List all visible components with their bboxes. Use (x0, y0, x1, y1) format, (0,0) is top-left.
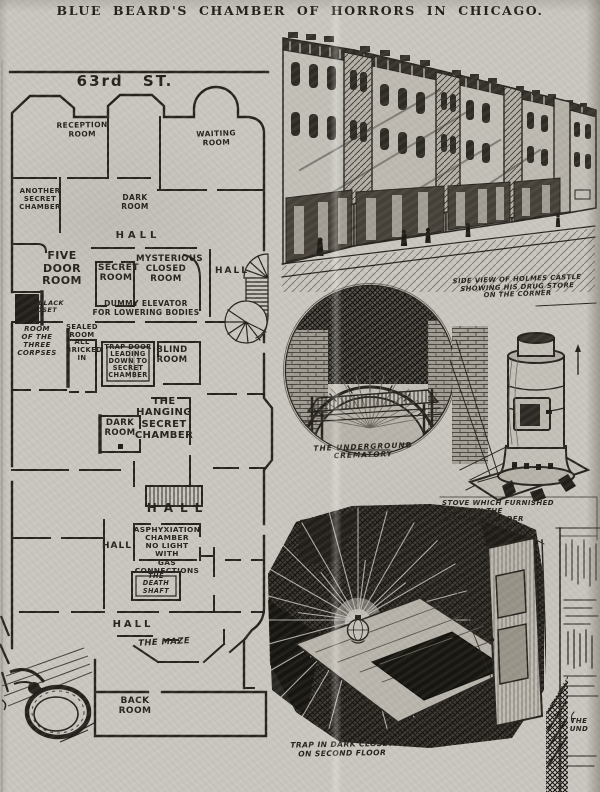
label-another-secret-chamber: ANOTHER SECRET CHAMBER (14, 188, 66, 212)
label-five-door-room: FIVE DOOR ROOM (32, 250, 92, 288)
label-hanging-secret-chamber: THE HANGING SECRET CHAMBER (132, 396, 196, 442)
crematory-illustration (284, 284, 461, 461)
page-title: BLUE BEARD'S CHAMBER OF HORRORS IN CHICA… (0, 3, 600, 18)
newspaper-artwork (0, 0, 600, 792)
label-death-shaft: THE DEATH SHAFT (136, 573, 176, 595)
label-room-of-three-corpses: ROOM OF THE THREE CORPSES (10, 326, 64, 358)
label-back-room: BACK ROOM (110, 696, 160, 717)
caption-trap: TRAP IN DARK CLOSET ON SECOND FLOOR (270, 739, 414, 759)
label-waiting-room: WAITING ROOM (186, 129, 247, 148)
label-sealed-room: SEALED ROOM ALL BRICKED IN (66, 324, 98, 363)
label-hall-bottom: HALL (106, 619, 160, 630)
label-street: 63rd ST. (66, 73, 184, 90)
label-black-closet: THE BLACK CLOSET (14, 300, 70, 315)
label-hall-upper: HALL (112, 230, 164, 241)
right-edge-illustration (546, 528, 600, 792)
caption-partial: THE UND (560, 718, 598, 734)
label-dummy-elevator: DUMMY ELEVATOR FOR LOWERING BODIES (90, 300, 202, 317)
label-hall-center: HALL (140, 502, 216, 516)
label-dark-room-upper: DARK ROOM (114, 194, 156, 211)
label-hall-right: HALL (210, 266, 254, 276)
label-asphyxiation-chamber: ASPHYXIATION CHAMBER NO LIGHT WITH GAS C… (128, 526, 206, 575)
label-trap-door: TRAP DOOR LEADING DOWN TO SECRET CHAMBER (104, 344, 152, 380)
noose-illustration (2, 648, 96, 742)
label-secret-room: SECRET ROOM (98, 263, 134, 284)
trap-closet-illustration (246, 504, 548, 748)
newspaper-page: BLUE BEARD'S CHAMBER OF HORRORS IN CHICA… (0, 0, 600, 792)
label-hall-left: HALL (96, 541, 138, 551)
margin-marks (0, 60, 9, 792)
label-blind-room: BLIND ROOM (152, 346, 192, 365)
label-dark-room-lower: DARK ROOM (101, 419, 139, 438)
caption-stove: STOVE WHICH FURNISHED CLEWS IN THE WILLI… (442, 500, 592, 524)
label-reception-room: RECEPTION ROOM (50, 121, 114, 139)
castle-illustration (282, 32, 596, 306)
label-mysterious-closed-room: MYSTERIOUS CLOSED ROOM (136, 255, 196, 284)
